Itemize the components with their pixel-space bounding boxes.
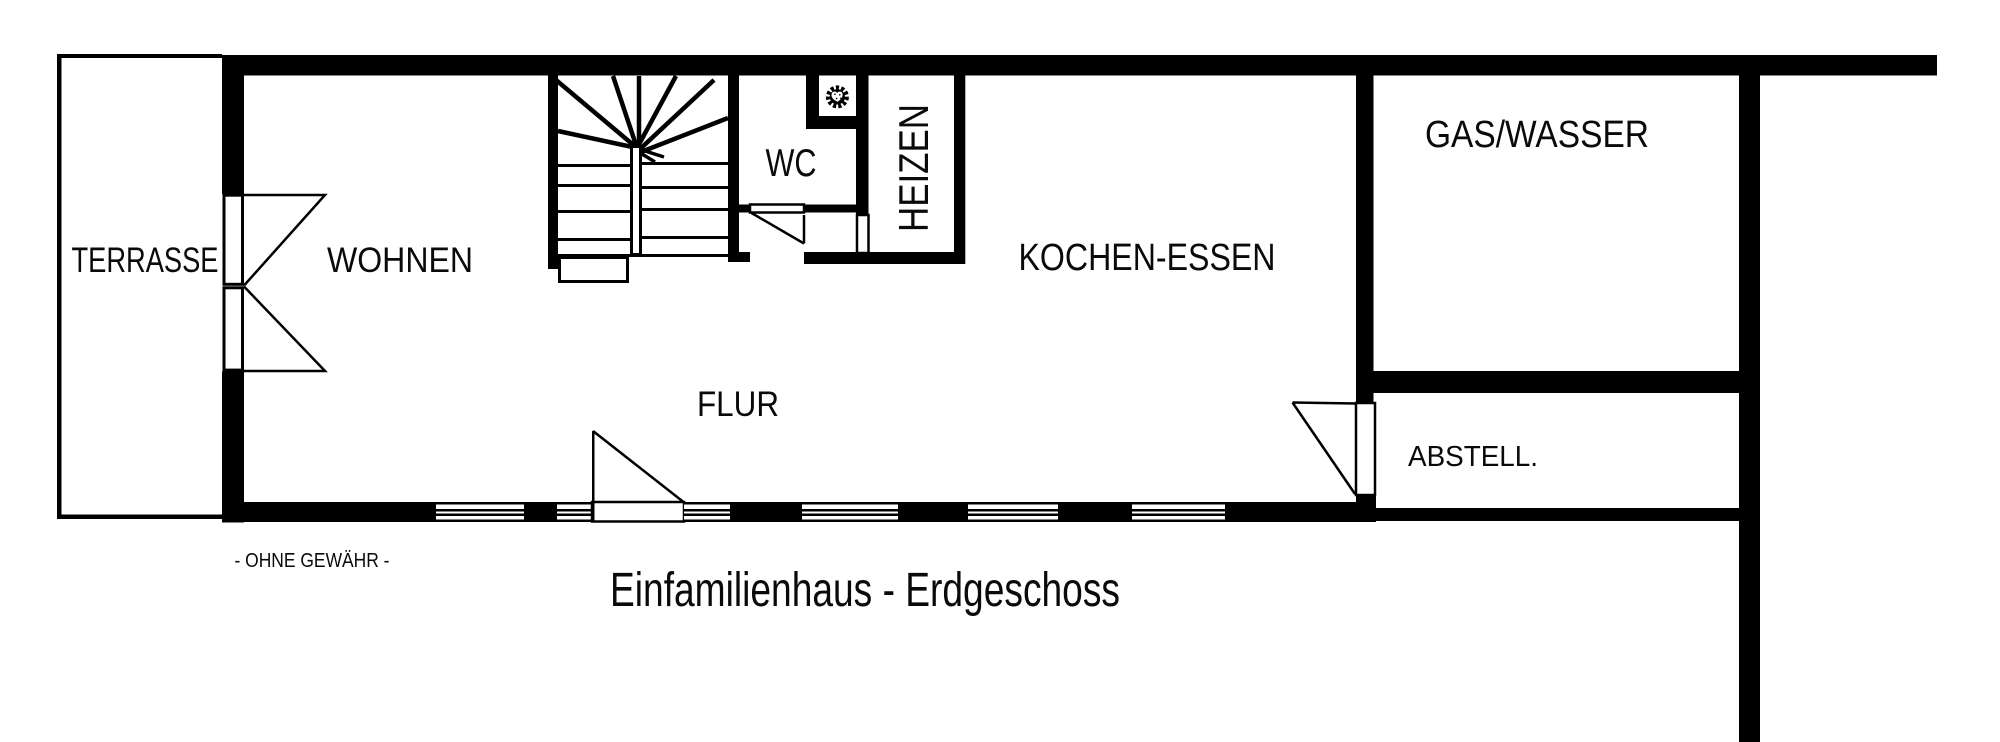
svg-text:HEIZEN: HEIZEN xyxy=(890,104,937,232)
svg-text:ABSTELL.: ABSTELL. xyxy=(1408,441,1538,473)
svg-text:WC: WC xyxy=(766,142,817,185)
svg-text:FLUR: FLUR xyxy=(697,385,779,424)
svg-text:TERRASSE: TERRASSE xyxy=(72,240,219,280)
svg-text:- OHNE GEWÄHR -: - OHNE GEWÄHR - xyxy=(235,549,390,572)
svg-text:Einfamilienhaus - Erdgeschoss: Einfamilienhaus - Erdgeschoss xyxy=(610,564,1120,617)
svg-text:KOCHEN-ESSEN: KOCHEN-ESSEN xyxy=(1019,236,1276,279)
svg-text:WOHNEN: WOHNEN xyxy=(327,240,473,280)
svg-text:GAS/WASSER: GAS/WASSER xyxy=(1425,113,1649,156)
